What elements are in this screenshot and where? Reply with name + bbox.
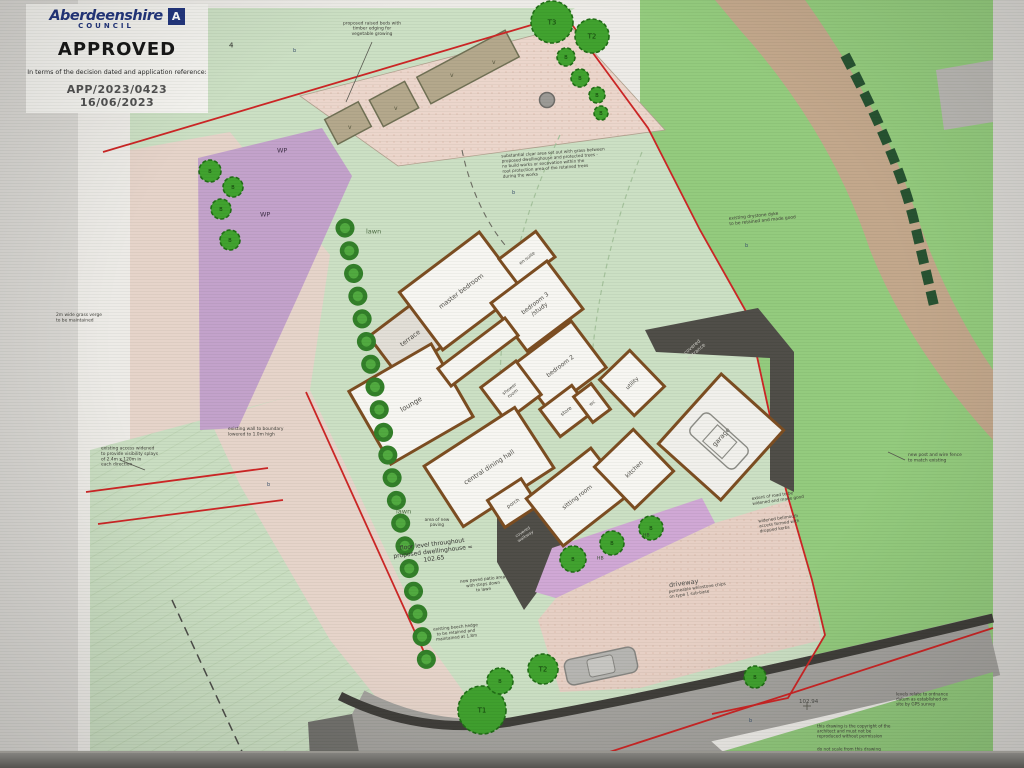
spot-level-102-94: 102.94 bbox=[799, 699, 819, 705]
tree-label-b: B bbox=[599, 111, 603, 117]
decision-date: 16/06/2023 bbox=[26, 96, 208, 109]
tree-label-b: B bbox=[753, 675, 757, 681]
tree-label-t3: T3 bbox=[547, 18, 557, 26]
bed-plant-mark-1: v bbox=[348, 124, 352, 131]
site-plan: terraceloungemaster bedroomen-suitebedro… bbox=[0, 0, 1024, 768]
marker-b-1: b bbox=[293, 48, 296, 54]
tree-label-t2: T2 bbox=[587, 32, 597, 40]
tree-label-b: B bbox=[595, 93, 599, 99]
approval-stamp: Aberdeenshire COUNCIL A APPROVED In term… bbox=[26, 4, 208, 113]
well-marker bbox=[540, 93, 555, 108]
council-logo: Aberdeenshire COUNCIL A bbox=[26, 8, 208, 30]
tree-label-b: B bbox=[649, 526, 653, 532]
bed-plant-mark-2: v bbox=[394, 105, 398, 112]
bed-plant-mark-3: v bbox=[450, 72, 454, 79]
application-reference: APP/2023/0423 bbox=[26, 83, 208, 96]
tree-label-b: B bbox=[578, 76, 582, 82]
tree-label-b: B bbox=[610, 541, 614, 547]
label-hb-1: HB bbox=[597, 556, 604, 562]
screen-photo: terraceloungemaster bedroomen-suitebedro… bbox=[0, 0, 1024, 768]
label-hb-2: HB bbox=[643, 533, 650, 539]
tree-label-b: B bbox=[208, 169, 212, 175]
tree-label-t2: T2 bbox=[538, 665, 548, 673]
tree-label-b: B bbox=[219, 207, 223, 213]
council-logo-mark: A bbox=[168, 8, 185, 25]
label-tree-ref-4: 4 bbox=[229, 41, 234, 49]
tree-label-t1: T1 bbox=[477, 706, 487, 714]
label-wp-1: WP bbox=[277, 146, 287, 154]
tree-label-b: B bbox=[498, 679, 502, 685]
label-wp-2: WP bbox=[260, 210, 270, 218]
tree-label-b: B bbox=[231, 185, 235, 191]
label-lawn-2: lawn bbox=[396, 507, 411, 515]
approved-status: APPROVED bbox=[26, 39, 208, 60]
monitor-bezel bbox=[0, 751, 1024, 768]
marker-b-3: b bbox=[745, 243, 748, 249]
marker-b-2: b bbox=[512, 190, 515, 196]
tree-label-b: B bbox=[571, 557, 575, 563]
marker-b-5: b bbox=[749, 718, 752, 724]
bed-plant-mark-4: v bbox=[492, 59, 496, 66]
label-lawn-1: lawn bbox=[366, 227, 381, 235]
tree-label-b: B bbox=[564, 55, 568, 61]
tree-label-b: B bbox=[228, 238, 232, 244]
road-stub-top-right bbox=[936, 60, 993, 130]
approval-statement: In terms of the decision dated and appli… bbox=[26, 69, 208, 76]
marker-b-4: b bbox=[267, 482, 270, 488]
